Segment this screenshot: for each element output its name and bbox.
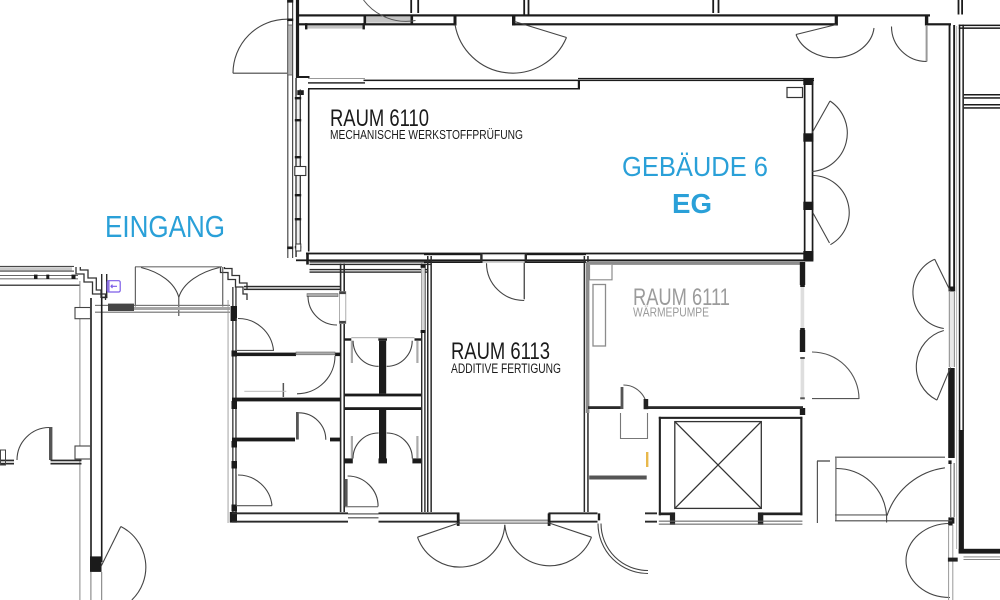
svg-text:ADDITIVE FERTIGUNG: ADDITIVE FERTIGUNG (451, 361, 561, 376)
svg-text:EINGANG: EINGANG (105, 209, 225, 244)
svg-text:MECHANISCHE WERKSTOFFPRÜFUNG: MECHANISCHE WERKSTOFFPRÜFUNG (330, 127, 523, 142)
svg-text:GEBÄUDE 6: GEBÄUDE 6 (622, 151, 768, 182)
svg-text:EG: EG (672, 188, 712, 219)
svg-text:WÄRMEPUMPE: WÄRMEPUMPE (633, 306, 709, 320)
